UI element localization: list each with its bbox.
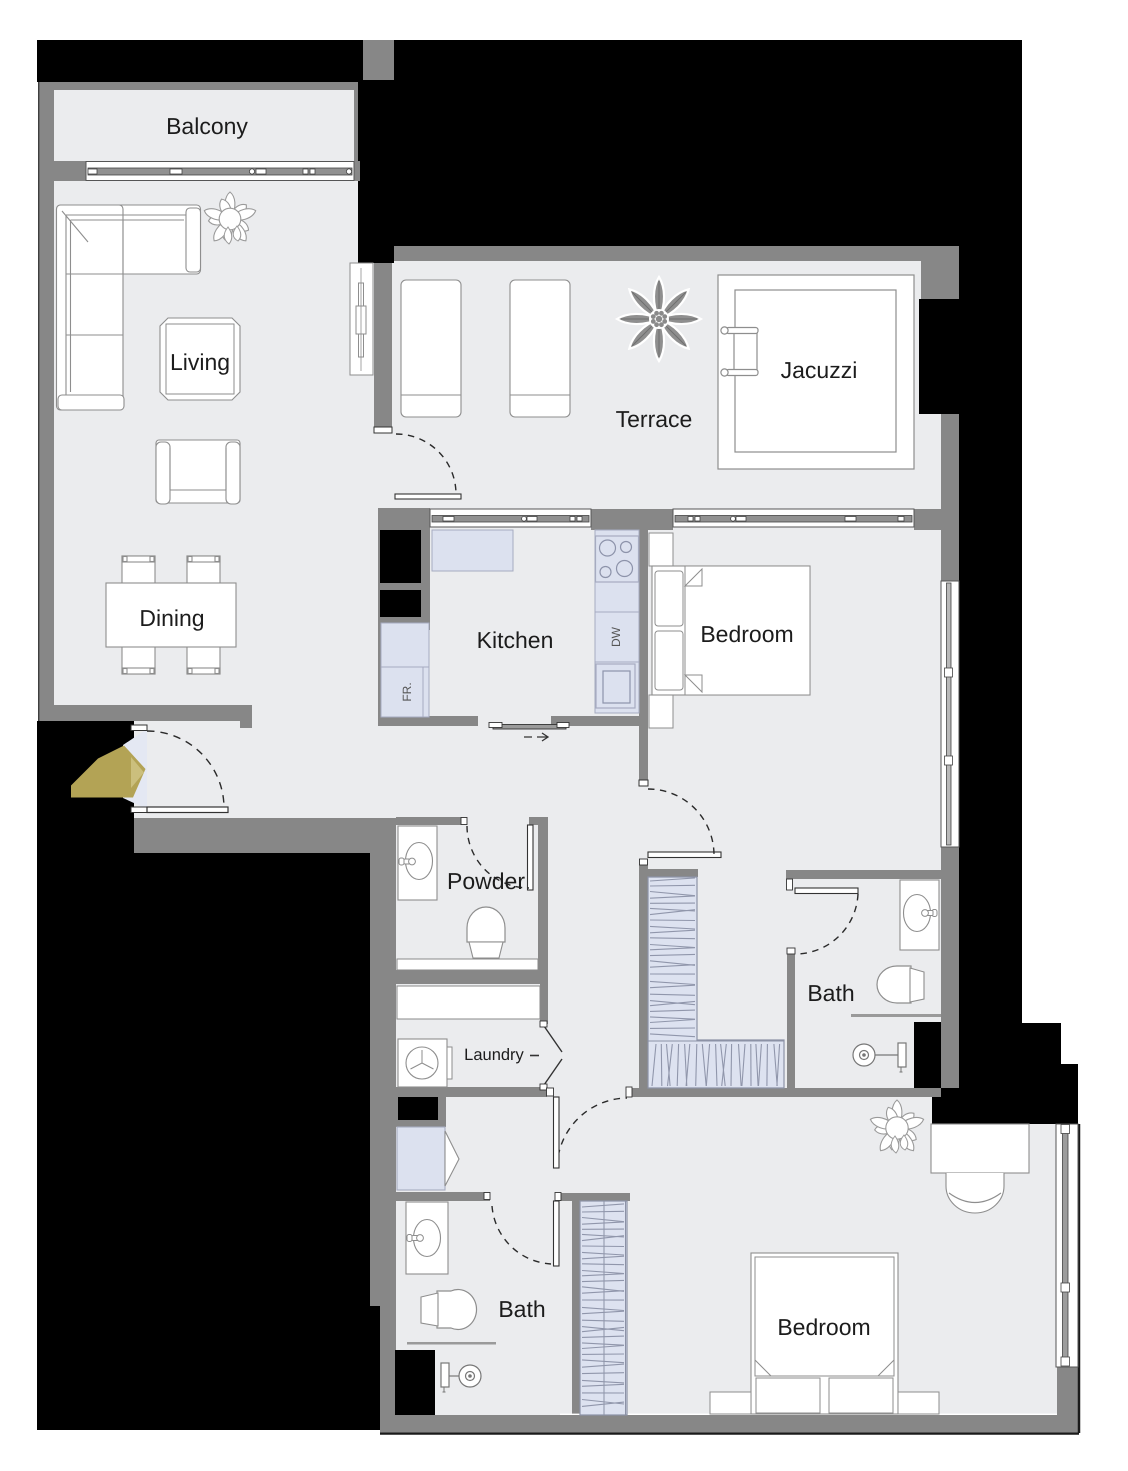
- svg-text:Jacuzzi: Jacuzzi: [781, 357, 858, 383]
- svg-text:DW: DW: [609, 626, 623, 647]
- svg-text:FR.: FR.: [400, 682, 414, 701]
- svg-text:Bath: Bath: [498, 1296, 545, 1322]
- svg-text:Powder: Powder: [447, 868, 525, 894]
- svg-text:Balcony: Balcony: [166, 113, 248, 139]
- svg-text:Laundry: Laundry: [464, 1046, 524, 1064]
- svg-text:Bath: Bath: [807, 980, 854, 1006]
- svg-text:Bedroom: Bedroom: [777, 1314, 870, 1340]
- svg-text:Terrace: Terrace: [616, 406, 693, 432]
- svg-text:Bedroom: Bedroom: [700, 621, 793, 647]
- svg-text:Kitchen: Kitchen: [477, 627, 554, 653]
- svg-text:Living: Living: [170, 349, 230, 375]
- svg-text:Dining: Dining: [139, 605, 204, 631]
